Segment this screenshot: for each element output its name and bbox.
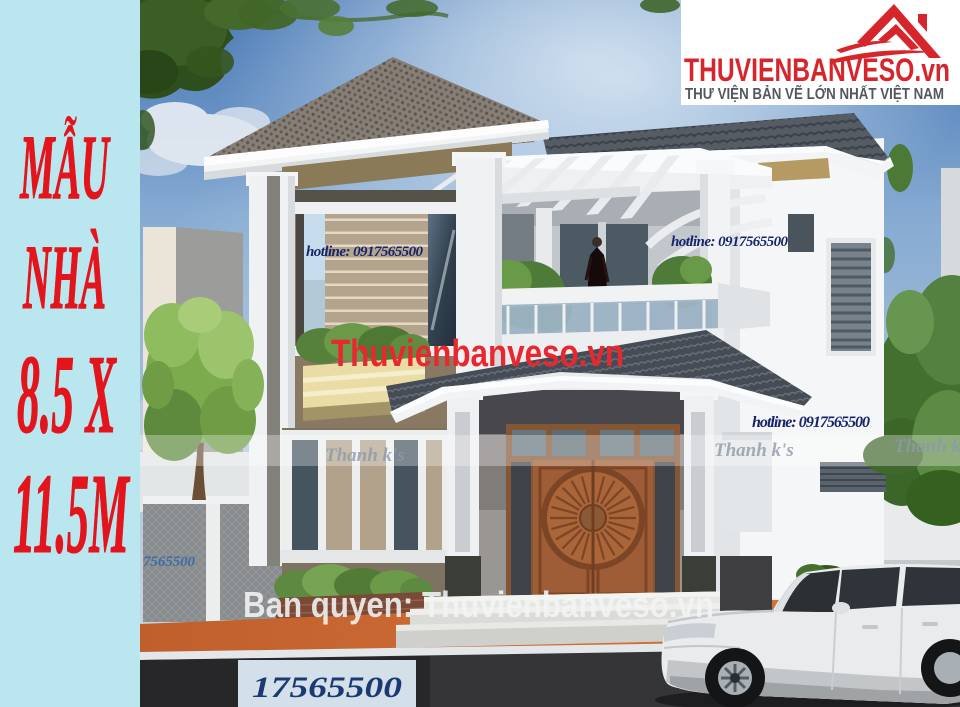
- svg-text:hotline: 0917565500: hotline: 0917565500: [671, 234, 789, 250]
- svg-text:hotline: 0917565500: hotline: 0917565500: [752, 414, 870, 431]
- svg-text:Thuvienbanveso.vn: Thuvienbanveso.vn: [331, 333, 624, 375]
- svg-text:Thanh k's: Thanh k's: [325, 445, 405, 466]
- svg-text:hotline: 0917565500: hotline: 0917565500: [306, 244, 424, 260]
- svg-text:11.5M: 11.5M: [13, 450, 130, 577]
- svg-text:7565500: 7565500: [143, 554, 196, 570]
- svg-text:NHÀ: NHÀ: [23, 226, 106, 328]
- svg-text:Ban quyen: Thuvienbanveso.vn: Ban quyen: Thuvienbanveso.vn: [243, 584, 714, 625]
- svg-text:THUVIENBANVESO.vn: THUVIENBANVESO.vn: [684, 52, 950, 88]
- svg-text:Thanh k's: Thanh k's: [714, 440, 794, 461]
- svg-text:17565500: 17565500: [252, 671, 402, 704]
- svg-text:THƯ VIỆN BẢN VẼ LỚN NHẤT VIỆT: THƯ VIỆN BẢN VẼ LỚN NHẤT VIỆT NAM: [685, 85, 944, 103]
- svg-text:MẪU: MẪU: [19, 116, 111, 218]
- svg-text:8.5 X: 8.5 X: [17, 333, 117, 457]
- svg-text:Thanh k's: Thanh k's: [894, 436, 960, 457]
